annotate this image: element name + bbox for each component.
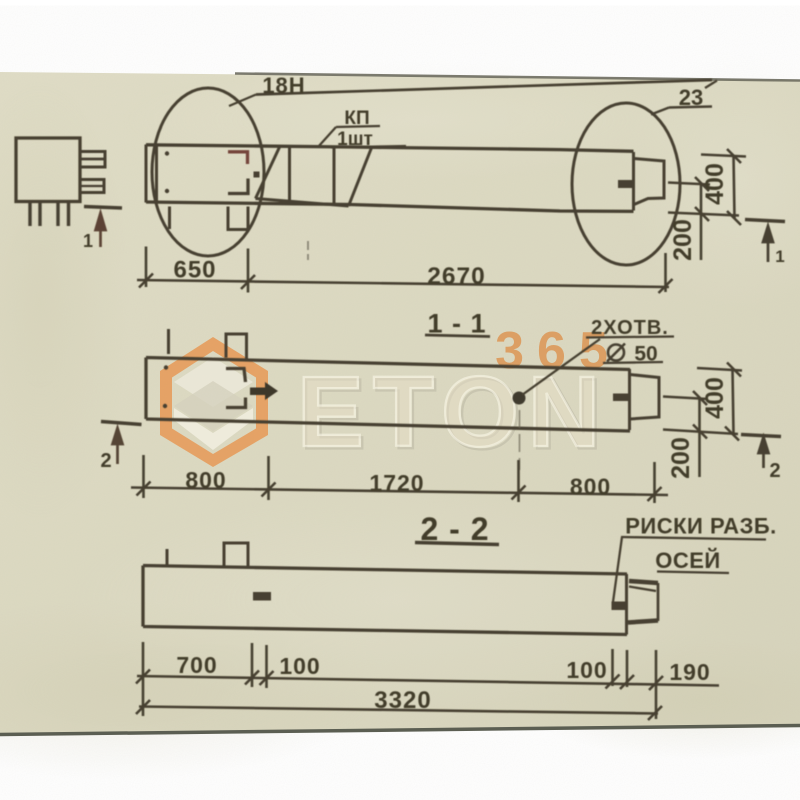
svg-text:650: 650 [173, 257, 216, 284]
svg-text:400: 400 [701, 377, 729, 419]
svg-text:200: 200 [667, 437, 695, 479]
svg-text:ETON: ETON [297, 356, 609, 468]
svg-text:400: 400 [701, 163, 729, 205]
svg-text:1: 1 [775, 247, 784, 266]
svg-text:100: 100 [279, 653, 320, 679]
svg-text:18Н: 18Н [262, 73, 305, 98]
svg-text:2: 2 [769, 460, 780, 482]
svg-text:1720: 1720 [369, 470, 424, 496]
svg-text:100: 100 [566, 657, 607, 683]
svg-text:800: 800 [185, 467, 226, 493]
svg-text:190: 190 [669, 659, 710, 685]
svg-text:23: 23 [679, 85, 703, 110]
svg-text:700: 700 [176, 652, 217, 678]
svg-text:200: 200 [669, 219, 697, 261]
svg-text:2: 2 [100, 450, 111, 472]
svg-text:ОСЕЙ: ОСЕЙ [655, 548, 721, 573]
svg-text:3320: 3320 [374, 687, 431, 714]
svg-text:2670: 2670 [427, 263, 486, 290]
svg-text:1: 1 [83, 231, 93, 251]
svg-text:РИСКИ РАЗБ.: РИСКИ РАЗБ. [625, 514, 777, 539]
svg-text:800: 800 [570, 474, 611, 500]
